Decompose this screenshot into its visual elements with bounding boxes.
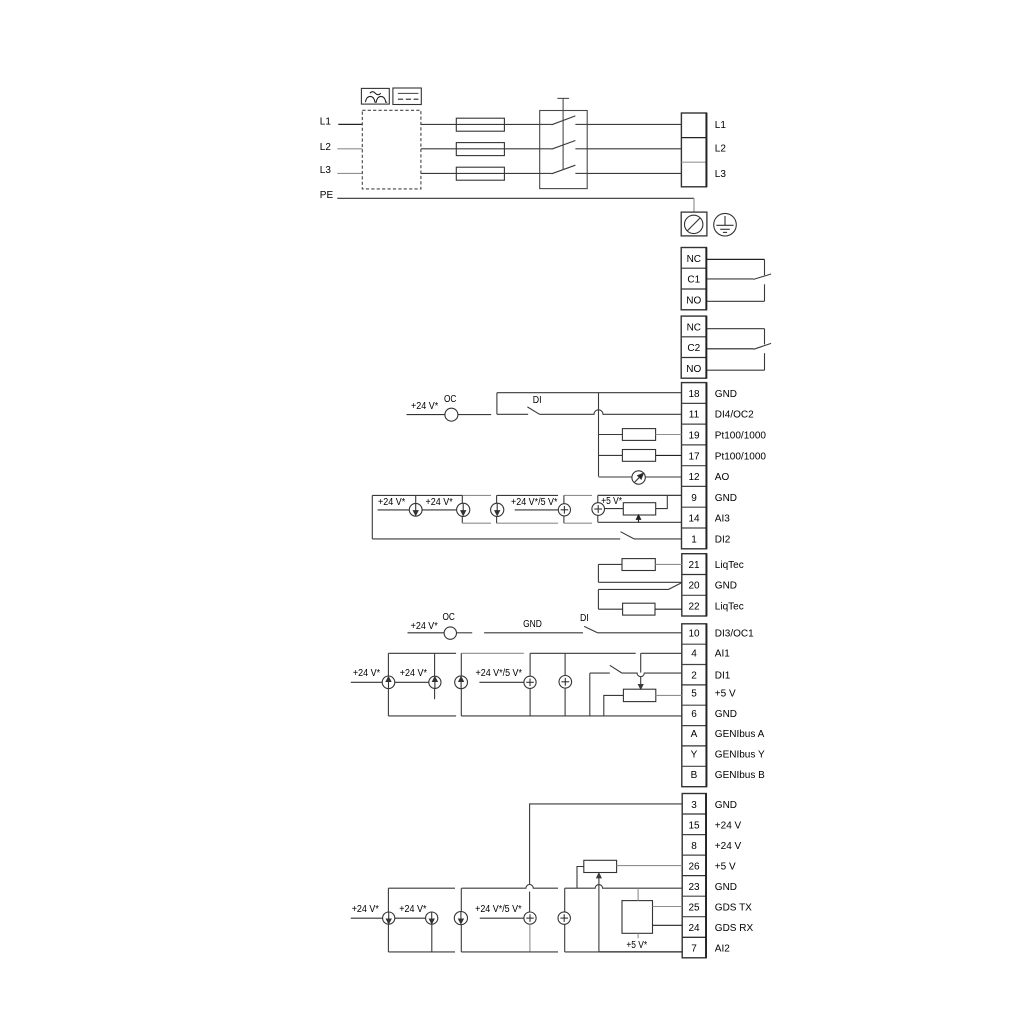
svg-text:GENIbus Y: GENIbus Y [715, 750, 765, 761]
svg-text:GND: GND [715, 709, 737, 720]
svg-text:DI3/OC1: DI3/OC1 [715, 628, 754, 639]
svg-text:C1: C1 [687, 275, 700, 286]
svg-text:LiqTec: LiqTec [715, 560, 744, 571]
svg-text:+24 V*/5 V*: +24 V*/5 V* [475, 904, 522, 915]
svg-text:DI: DI [533, 395, 542, 406]
svg-text:14: 14 [688, 514, 700, 525]
svg-text:22: 22 [688, 602, 700, 613]
svg-text:+24 V: +24 V [715, 820, 742, 831]
svg-text:GND: GND [715, 581, 737, 592]
svg-text:12: 12 [688, 472, 700, 483]
svg-text:9: 9 [691, 493, 697, 504]
svg-text:GND: GND [715, 493, 737, 504]
svg-text:+24 V*/5 V*: +24 V*/5 V* [511, 497, 558, 508]
svg-text:DI1: DI1 [715, 670, 731, 681]
svg-text:OC: OC [443, 612, 455, 623]
svg-text:+5 V*: +5 V* [626, 940, 647, 951]
svg-text:GND: GND [715, 800, 737, 811]
svg-text:GDS RX: GDS RX [715, 923, 754, 934]
svg-text:8: 8 [691, 841, 697, 852]
svg-text:23: 23 [688, 882, 700, 893]
svg-text:AI3: AI3 [715, 514, 730, 525]
svg-text:GENIbus B: GENIbus B [715, 770, 765, 781]
svg-text:AI2: AI2 [715, 944, 730, 955]
svg-text:1: 1 [691, 534, 697, 545]
svg-text:11: 11 [689, 410, 700, 421]
svg-text:2: 2 [691, 670, 697, 681]
svg-text:+5 V*: +5 V* [601, 496, 622, 507]
svg-text:+24 V: +24 V [715, 841, 742, 852]
svg-text:17: 17 [688, 451, 700, 462]
svg-text:19: 19 [688, 431, 700, 442]
svg-text:L1: L1 [715, 120, 727, 131]
svg-text:+24 V*: +24 V* [399, 904, 426, 915]
svg-text:+24 V*: +24 V* [426, 497, 453, 508]
svg-text:10: 10 [688, 628, 700, 639]
svg-text:B: B [691, 770, 698, 781]
svg-text:21: 21 [688, 560, 700, 571]
svg-text:+5 V: +5 V [715, 689, 736, 700]
svg-text:26: 26 [688, 861, 700, 872]
svg-text:+24 V*: +24 V* [378, 497, 405, 508]
svg-text:+5 V: +5 V [715, 861, 736, 872]
svg-text:NC: NC [687, 323, 701, 334]
svg-text:GDS TX: GDS TX [715, 902, 752, 913]
svg-text:GND: GND [715, 882, 737, 893]
svg-text:GND: GND [523, 619, 542, 630]
svg-text:AO: AO [715, 472, 730, 483]
svg-text:PE: PE [320, 190, 334, 201]
svg-text:AI1: AI1 [715, 649, 730, 660]
svg-text:DI4/OC2: DI4/OC2 [715, 410, 754, 421]
svg-text:3: 3 [691, 800, 697, 811]
svg-text:15: 15 [688, 820, 700, 831]
svg-text:+24 V*: +24 V* [352, 904, 379, 915]
svg-text:NO: NO [686, 295, 701, 306]
svg-text:OC: OC [444, 394, 456, 405]
svg-text:LiqTec: LiqTec [715, 602, 744, 613]
svg-text:Y: Y [691, 750, 698, 761]
svg-text:+24 V*: +24 V* [400, 668, 427, 679]
svg-text:25: 25 [688, 902, 700, 913]
svg-text:+24 V*: +24 V* [353, 668, 380, 679]
svg-text:DI: DI [580, 613, 589, 624]
svg-text:DI2: DI2 [715, 534, 731, 545]
svg-text:6: 6 [691, 709, 697, 720]
svg-text:GENIbus A: GENIbus A [715, 729, 765, 740]
svg-text:L3: L3 [715, 169, 727, 180]
svg-text:18: 18 [688, 389, 700, 400]
svg-text:4: 4 [691, 649, 697, 660]
svg-text:NC: NC [687, 254, 701, 265]
svg-text:24: 24 [688, 923, 700, 934]
svg-text:Pt100/1000: Pt100/1000 [715, 431, 767, 442]
svg-text:L2: L2 [715, 144, 727, 155]
svg-text:+24 V*: +24 V* [411, 621, 438, 632]
svg-text:L1: L1 [320, 117, 332, 128]
svg-text:A: A [691, 729, 698, 740]
svg-text:5: 5 [691, 689, 697, 700]
svg-text:L2: L2 [320, 142, 332, 153]
svg-text:C2: C2 [687, 343, 700, 354]
svg-text:+24 V*/5 V*: +24 V*/5 V* [476, 668, 523, 679]
svg-text:GND: GND [715, 389, 737, 400]
svg-text:20: 20 [688, 581, 700, 592]
svg-text:+24 V*: +24 V* [411, 401, 438, 412]
svg-text:NO: NO [686, 364, 701, 375]
svg-text:7: 7 [691, 944, 697, 955]
svg-text:L3: L3 [320, 165, 332, 176]
svg-text:Pt100/1000: Pt100/1000 [715, 451, 767, 462]
